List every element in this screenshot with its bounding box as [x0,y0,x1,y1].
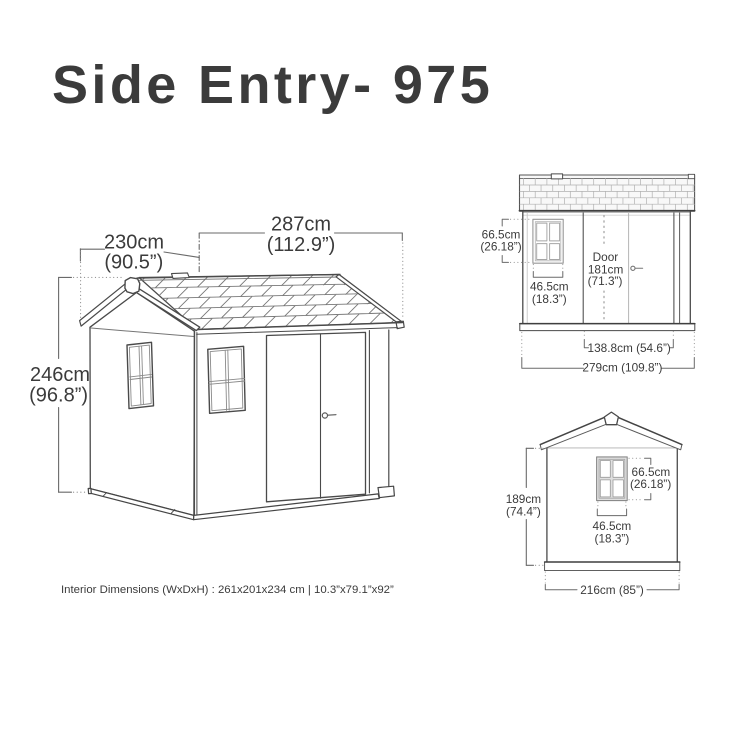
svg-text:Side Entry- 975: Side Entry- 975 [52,55,493,115]
svg-text:230cm: 230cm [104,231,164,253]
svg-text:(18.3”): (18.3”) [595,532,630,546]
svg-text:138.8cm (54.6”): 138.8cm (54.6”) [588,341,671,355]
svg-text:(26.18”): (26.18”) [480,240,521,254]
svg-text:(71.3”): (71.3”) [588,274,623,288]
svg-text:(90.5”): (90.5”) [104,251,163,273]
svg-text:287cm: 287cm [271,214,331,236]
svg-text:(26.18”): (26.18”) [630,477,671,491]
svg-text:(96.8”): (96.8”) [29,385,88,407]
svg-text:246cm: 246cm [30,364,90,386]
svg-text:(74.4”): (74.4”) [506,505,541,519]
svg-text:216cm (85”): 216cm (85”) [580,583,644,597]
svg-text:Interior Dimensions (WxDxH) :: Interior Dimensions (WxDxH) : 261x201x23… [61,584,394,596]
svg-text:279cm (109.8”): 279cm (109.8”) [582,361,662,375]
svg-text:(18.3”): (18.3”) [532,292,567,306]
svg-text:(112.9”): (112.9”) [267,234,336,256]
